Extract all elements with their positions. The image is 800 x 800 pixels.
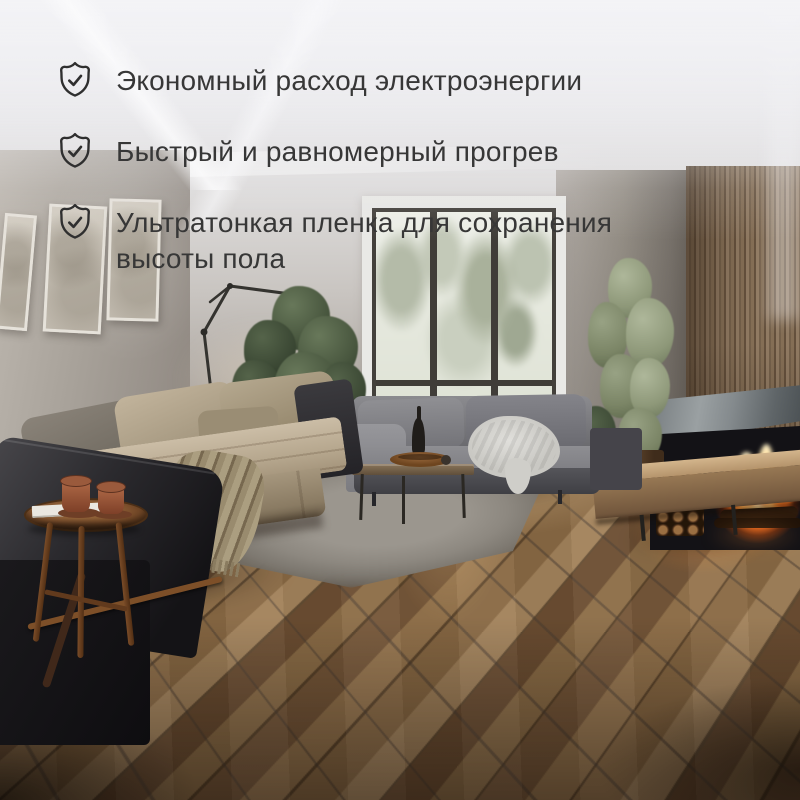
sofa-leg	[372, 492, 376, 506]
feature-label: Экономный расход электроэнергии	[116, 63, 582, 99]
feature-label: Быстрый и равномерный прогрев	[116, 134, 559, 170]
table-leg	[33, 522, 54, 642]
feature-row-1: Экономный расход электроэнергии	[56, 60, 656, 102]
shield-check-icon	[56, 202, 94, 244]
coffee-table-leg	[402, 476, 405, 524]
table-leg	[77, 526, 84, 658]
table-leg	[116, 522, 135, 646]
features-list: Экономный расход электроэнергии Быстрый …	[56, 60, 656, 306]
cup-2	[98, 486, 124, 514]
round-side-table	[18, 458, 152, 678]
cup-1	[62, 480, 90, 512]
gray-sofa-right-end	[590, 428, 642, 490]
sofa-leg	[558, 490, 562, 504]
shield-check-icon	[56, 60, 94, 102]
shield-check-icon	[56, 131, 94, 173]
feature-label: Ультратонкая пленка для сохранения высот…	[116, 205, 636, 277]
feature-row-2: Быстрый и равномерный прогрев	[56, 131, 656, 173]
decor-sphere	[441, 455, 451, 465]
decor-bottle	[412, 418, 425, 456]
table-stretcher	[44, 589, 127, 611]
lamp-joint	[201, 329, 208, 336]
promo-image: Экономный расход электроэнергии Быстрый …	[0, 0, 800, 800]
feature-row-3: Ультратонкая пленка для сохранения высот…	[56, 202, 656, 277]
right-edge-highlight	[768, 0, 800, 320]
